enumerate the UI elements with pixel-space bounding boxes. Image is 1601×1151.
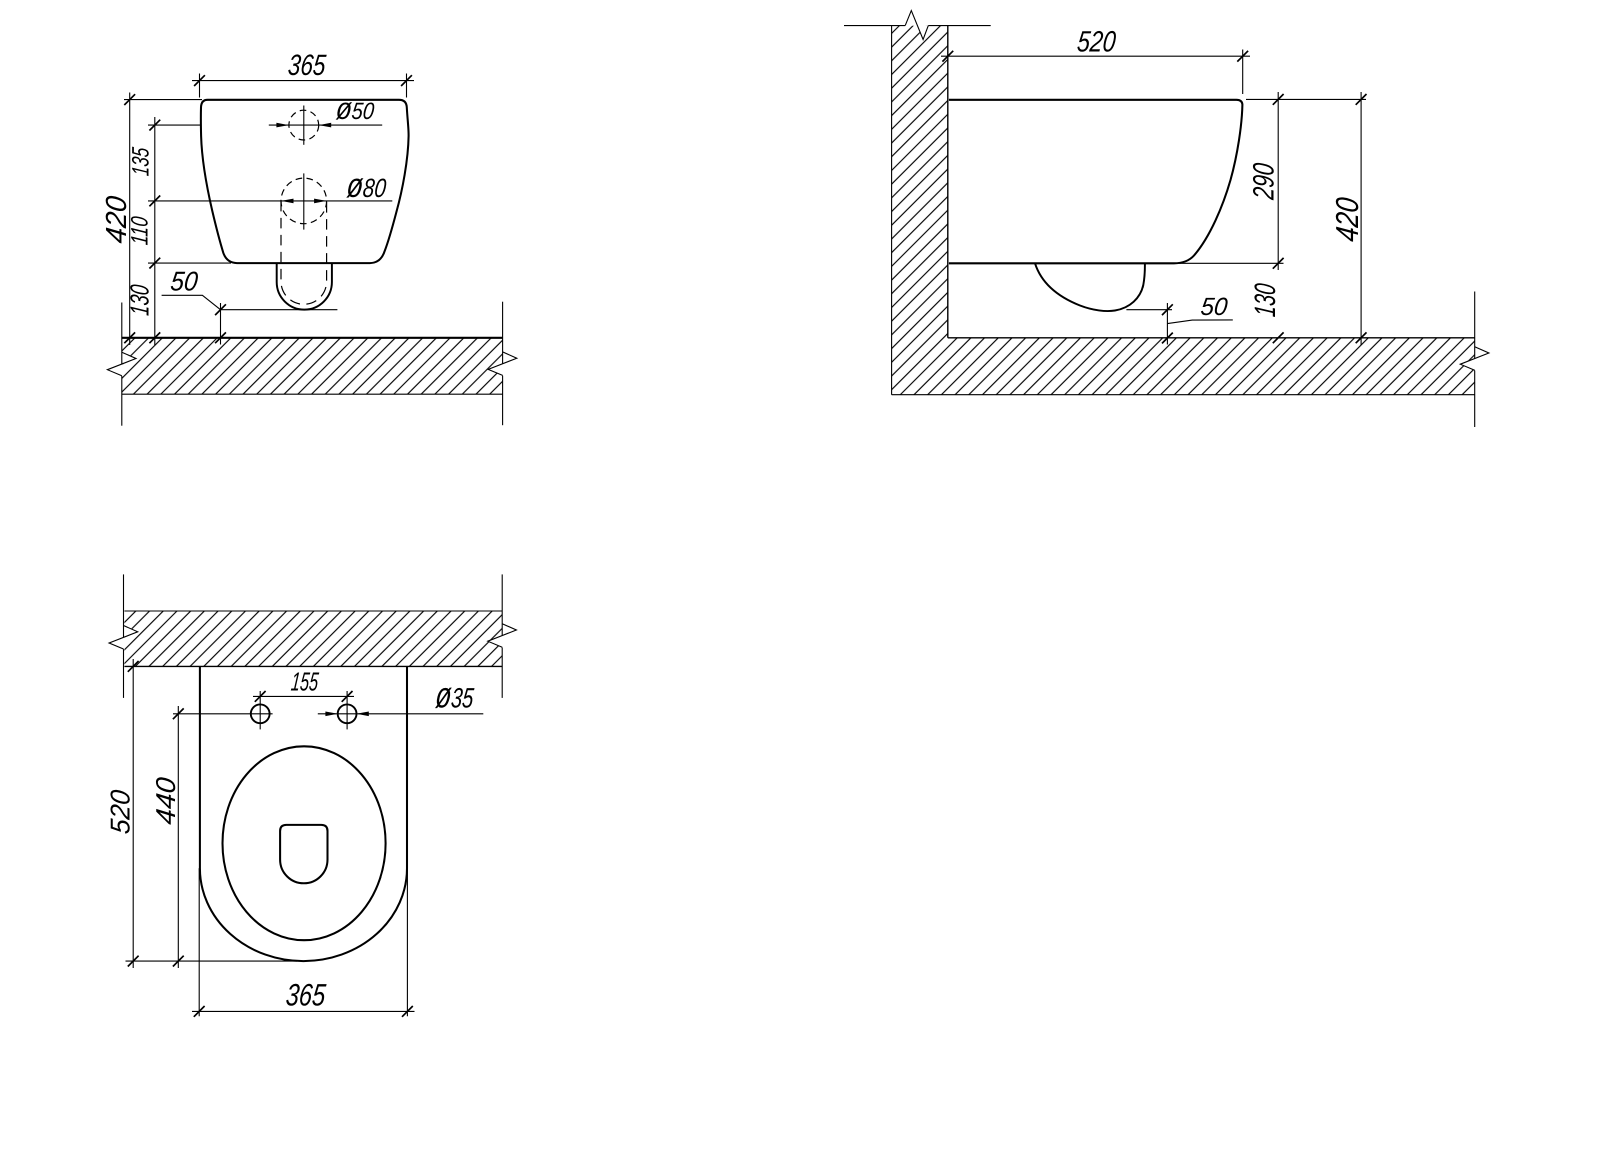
svg-text:130: 130 (124, 283, 154, 317)
svg-text:110: 110 (127, 215, 154, 247)
svg-text:155: 155 (290, 667, 320, 697)
svg-text:290: 290 (1248, 161, 1281, 202)
svg-text:520: 520 (105, 788, 136, 835)
svg-text:130: 130 (1249, 282, 1282, 319)
svg-text:135: 135 (128, 146, 155, 177)
svg-text:420: 420 (1329, 195, 1365, 243)
svg-text:365: 365 (287, 49, 328, 82)
svg-text:50: 50 (1199, 293, 1229, 321)
svg-text:ø80: ø80 (345, 167, 388, 205)
svg-text:440: 440 (150, 776, 181, 826)
svg-text:520: 520 (1076, 26, 1118, 59)
svg-text:365: 365 (284, 978, 327, 1013)
svg-text:50: 50 (169, 266, 199, 297)
svg-text:ø35: ø35 (434, 675, 477, 716)
